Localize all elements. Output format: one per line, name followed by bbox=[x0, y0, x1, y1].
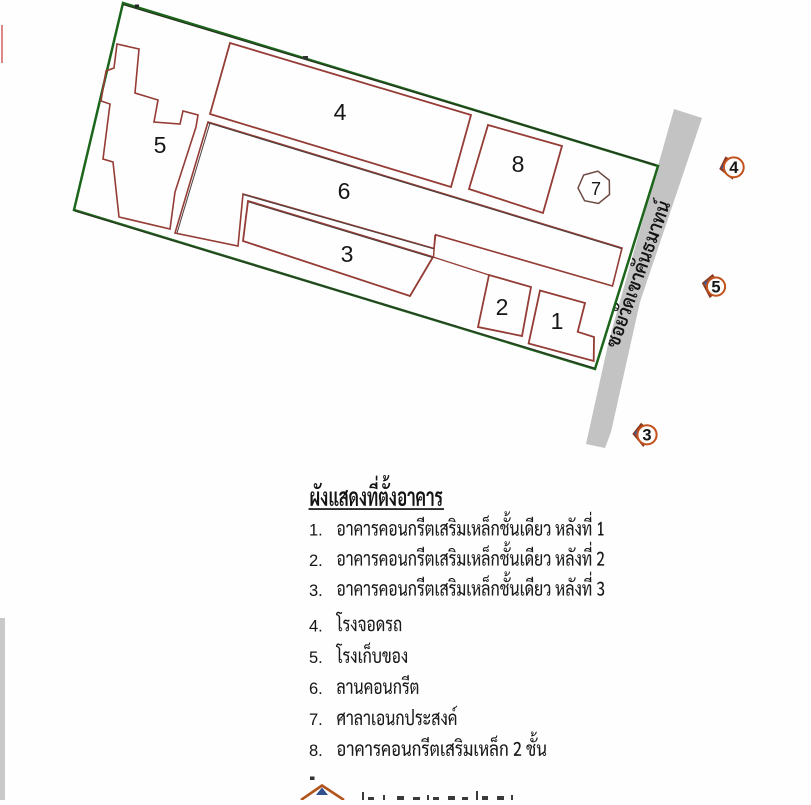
svg-text:6: 6 bbox=[338, 178, 351, 204]
svg-text:7.: 7. bbox=[309, 711, 323, 729]
svg-text:5.: 5. bbox=[309, 649, 323, 667]
svg-text:8.: 8. bbox=[309, 742, 323, 760]
svg-text:4.: 4. bbox=[309, 617, 323, 635]
svg-text:8: 8 bbox=[512, 151, 525, 177]
svg-text:3: 3 bbox=[642, 427, 651, 445]
svg-text:6.: 6. bbox=[309, 680, 323, 698]
svg-text:5: 5 bbox=[154, 132, 167, 158]
svg-text:1.: 1. bbox=[309, 522, 323, 540]
svg-text:7: 7 bbox=[591, 179, 601, 199]
svg-text:4: 4 bbox=[729, 159, 739, 177]
svg-text:2: 2 bbox=[496, 294, 509, 320]
svg-text:2.: 2. bbox=[309, 552, 323, 570]
svg-text:5: 5 bbox=[711, 279, 720, 297]
svg-text:3: 3 bbox=[341, 241, 354, 267]
svg-text:3.: 3. bbox=[309, 582, 323, 600]
svg-text:4: 4 bbox=[334, 99, 347, 125]
svg-text:1: 1 bbox=[551, 308, 564, 334]
